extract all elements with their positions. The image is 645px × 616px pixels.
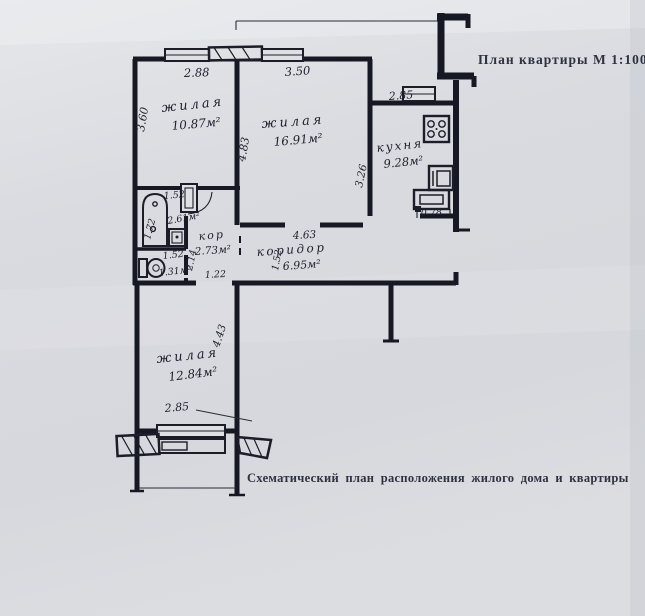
corridor-area: 6.95м² <box>282 257 321 273</box>
page-caption: Схематический план расположения жилого д… <box>247 471 629 485</box>
room3-dim-width: 2.85 <box>163 400 190 415</box>
room2-dim-width: 3.50 <box>284 63 311 79</box>
washbasin-drain <box>176 236 179 239</box>
balcony-block-top <box>209 47 262 61</box>
kitchen-dim-entry: 0.78 <box>421 207 443 219</box>
floor-plan-drawing: жилая 10.87м² 2.88 3.60 жилая 16.91м² 3.… <box>0 0 645 616</box>
scanned-floor-plan-page: жилая 10.87м² 2.88 3.60 жилая 16.91м² 3.… <box>0 0 645 616</box>
hall-dim-door: 1.22 <box>205 269 227 281</box>
wc-dim-width: 1.52 <box>162 249 184 262</box>
hall-label: кор <box>198 228 225 243</box>
corridor-dim-length: 4.63 <box>292 229 317 242</box>
room1-dim-width: 2.88 <box>183 65 210 80</box>
stove-center-dot <box>436 128 438 130</box>
bathroom-dim-width: 1.52 <box>163 189 185 202</box>
page-title: План квартиры М 1:100 <box>478 52 645 67</box>
paper-edge-shadow <box>630 0 645 616</box>
kitchen-dim-width: 2.85 <box>387 88 413 103</box>
